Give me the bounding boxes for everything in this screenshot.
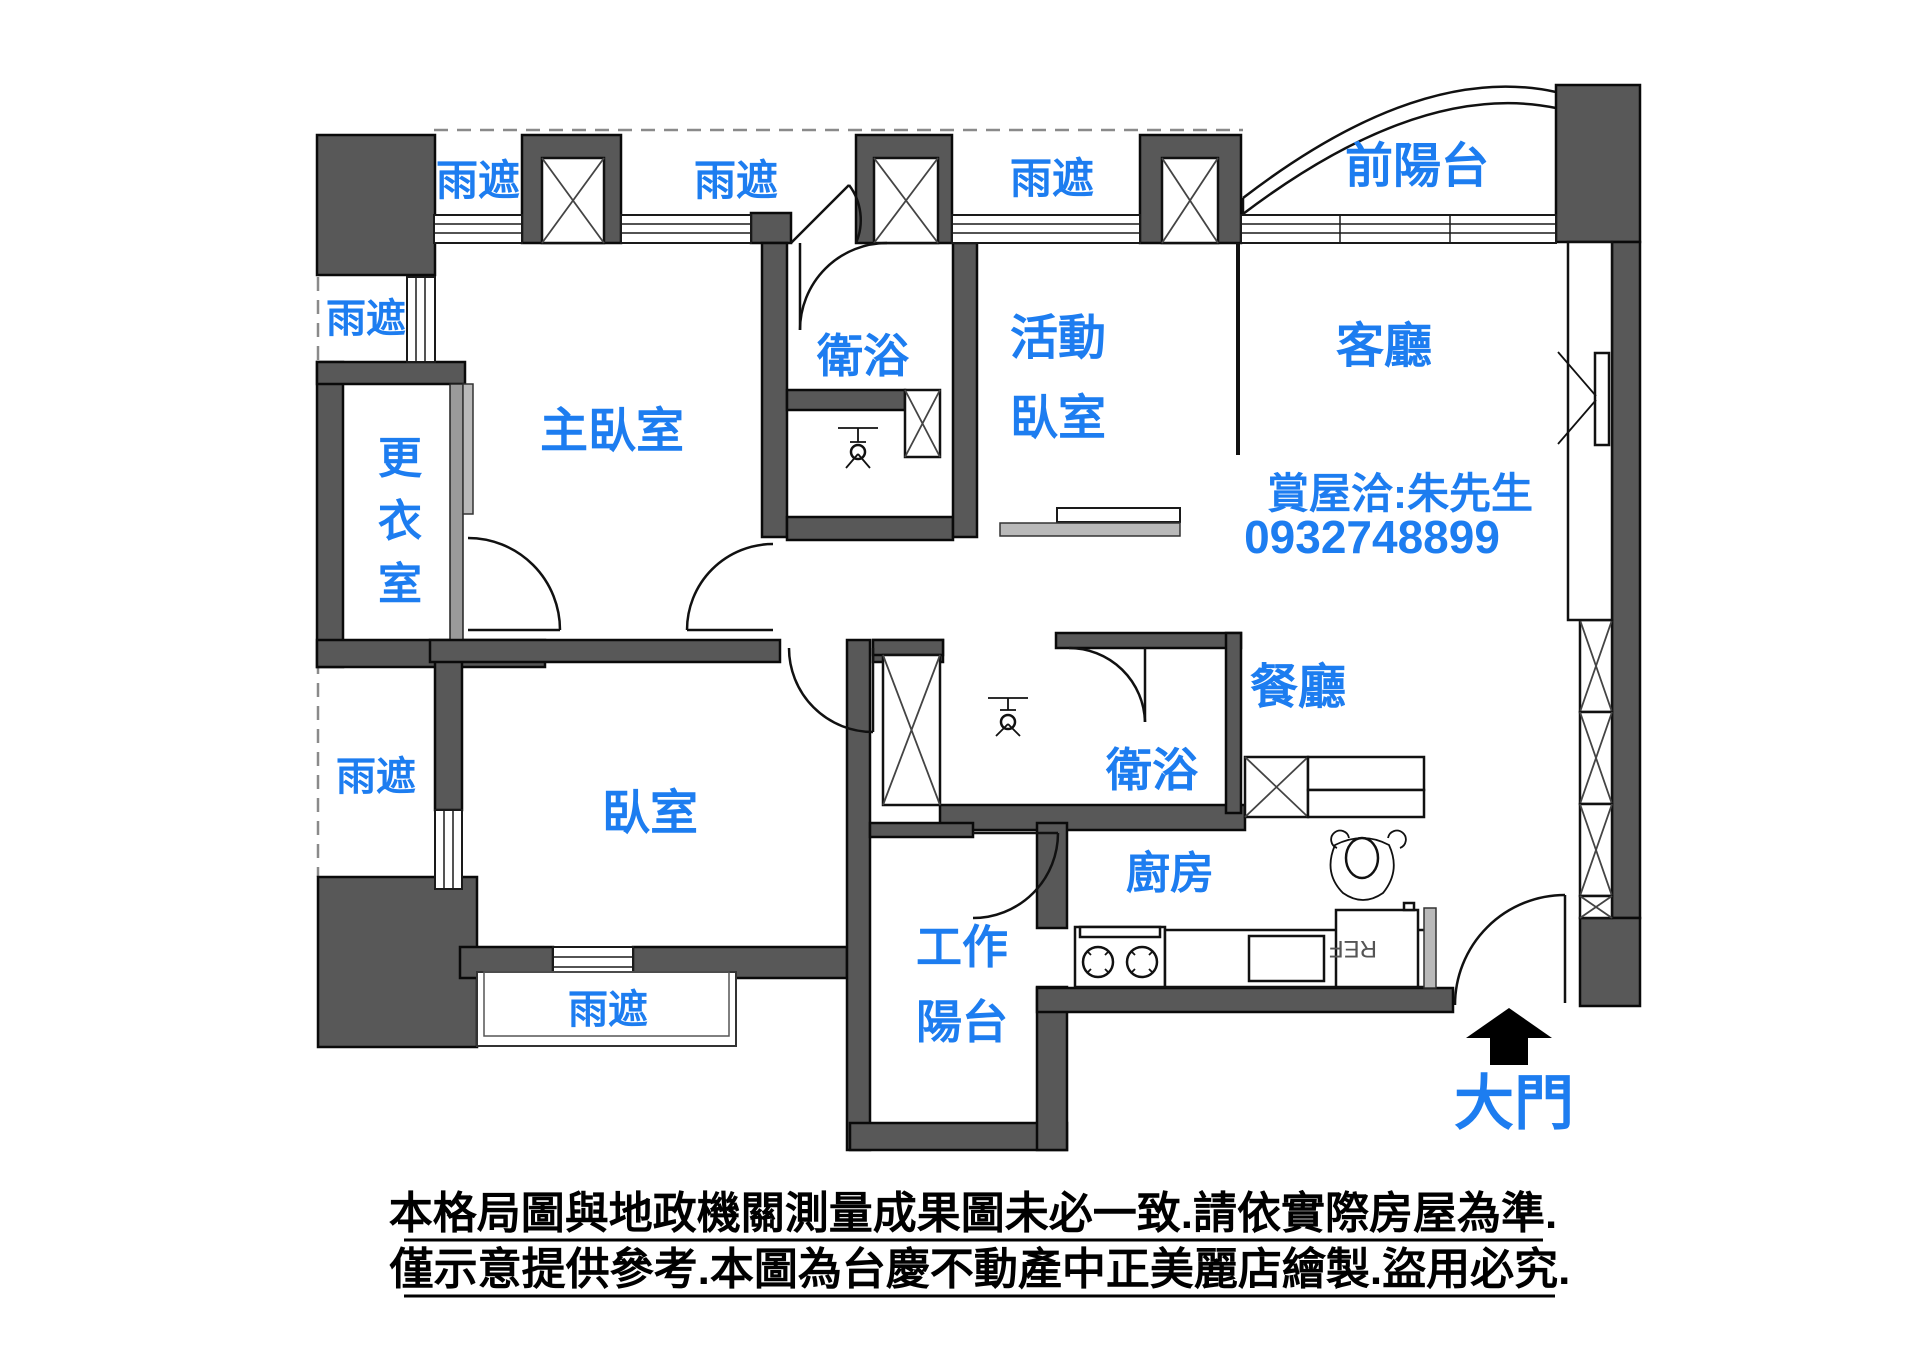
label-canopy-bottom: 雨遮	[568, 988, 648, 1032]
duct-x-kitchen-island	[1245, 757, 1308, 817]
door-canopy	[791, 185, 861, 243]
entry-arrow-icon	[1466, 1008, 1552, 1065]
door-dressing-slide	[463, 384, 473, 514]
closet-x-strip	[1580, 620, 1612, 918]
label-living: 客廳	[1336, 320, 1432, 373]
sink-icon-bath-bottom	[988, 698, 1028, 736]
duct-x-bath-top	[905, 390, 940, 457]
label-kitchen: 廚房	[1126, 848, 1214, 898]
disclaimer-line1: 本格局圖與地政機關測量成果圖未必一致.請依實際房屋為準.	[389, 1189, 1557, 1238]
duct-x-column3	[1162, 158, 1218, 243]
door-flex-sliding	[1000, 243, 1238, 536]
door-hinge-block	[751, 213, 791, 243]
floorplan-canvas: REF	[0, 0, 1920, 1357]
label-canopy-top-mid: 雨遮	[694, 157, 778, 204]
fridge-label: REF	[1329, 935, 1377, 962]
label-canopy-left-lower: 雨遮	[336, 755, 416, 799]
wall-top-left-block	[317, 135, 435, 275]
svg-text:衣: 衣	[378, 497, 422, 546]
label-dining: 餐廳	[1250, 661, 1346, 714]
label-bedroom: 臥室	[602, 787, 698, 840]
label-bath-top: 衛浴	[816, 330, 910, 382]
duct-x-column2	[874, 158, 938, 243]
label-master-bedroom: 主臥室	[540, 405, 684, 458]
label-contact-name: 賞屋洽:朱先生	[1267, 470, 1533, 517]
label-canopy-top-right: 雨遮	[1010, 155, 1094, 202]
label-canopy-left-upper: 雨遮	[326, 297, 406, 341]
door-master-bedroom	[687, 544, 773, 630]
label-main-door: 大門	[1454, 1070, 1574, 1137]
door-bath-top	[800, 243, 887, 330]
label-bath-bottom: 衛浴	[1105, 744, 1199, 796]
svg-text:更: 更	[378, 434, 423, 483]
door-bedroom2	[468, 538, 560, 630]
label-flex-bedroom-1: 活動	[1010, 312, 1106, 365]
duct-x-column1	[542, 158, 604, 243]
disclaimer: 本格局圖與地政機關測量成果圖未必一致.請依實際房屋為準. 僅示意提供參考.本圖為…	[389, 1189, 1571, 1296]
floorplan-page: { "colors": { "label_blue": "#1d7df0", "…	[0, 0, 1920, 1357]
door-bath-bottom	[1069, 648, 1145, 722]
disclaimer-line2: 僅示意提供參考.本圖為台慶不動產中正美麗店繪製.盜用必究.	[389, 1244, 1571, 1294]
wall-bath2-right	[1226, 633, 1241, 813]
doors	[463, 185, 1565, 1005]
stove-icon	[1075, 927, 1165, 987]
window-left-lower	[435, 810, 462, 889]
wall-bath2-top	[1056, 633, 1241, 648]
wall-top-right-corner	[1556, 85, 1640, 242]
door-main-entry	[1455, 895, 1565, 1005]
wall-bottom-left-block	[318, 877, 477, 1047]
duct-x-bath-bottom	[883, 655, 940, 805]
tv-cabinet-icon	[1558, 242, 1612, 620]
wall-dressing-thin	[450, 384, 463, 642]
label-contact-phone: 0932748899	[1244, 511, 1500, 563]
label-work-balcony-2: 陽台	[916, 996, 1008, 1048]
sink-icon-bath-top	[838, 428, 878, 468]
wall-bottom-right-corner	[1580, 918, 1640, 1006]
svg-text:室: 室	[378, 559, 422, 609]
label-work-balcony-1: 工作	[916, 921, 1008, 973]
label-flex-bedroom-2: 臥室	[1010, 392, 1106, 445]
label-front-balcony: 前陽台	[1345, 140, 1489, 193]
label-dressing-room: 更 衣 室	[378, 434, 423, 609]
window-left-upper	[407, 277, 435, 362]
wall-right	[1612, 242, 1640, 918]
dining-table-icon	[1308, 757, 1424, 817]
chair-icon	[1331, 831, 1406, 900]
label-canopy-top-left: 雨遮	[436, 157, 520, 204]
